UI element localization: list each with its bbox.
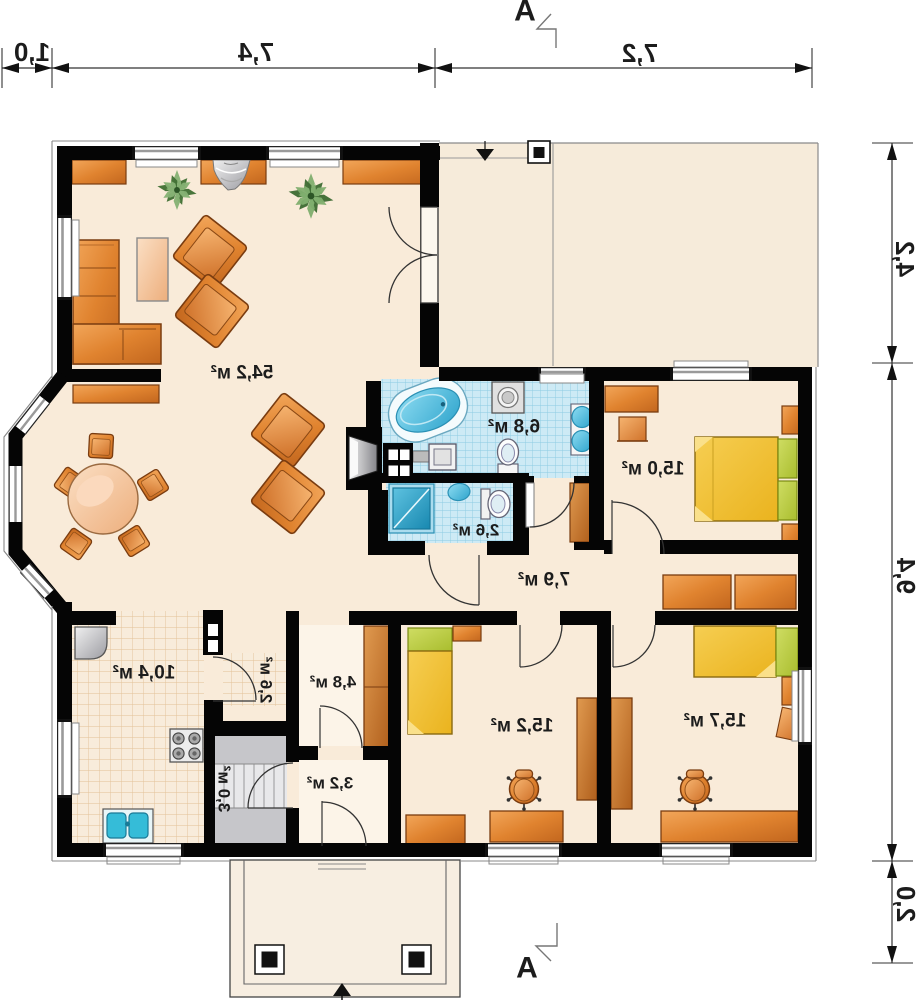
svg-text:7,9 м²: 7,9 м² <box>518 570 570 591</box>
svg-text:4,2: 4,2 <box>890 241 916 277</box>
svg-text:54,2 м²: 54,2 м² <box>211 363 274 384</box>
svg-text:15,2 м²: 15,2 м² <box>491 716 554 737</box>
svg-text:2,6 м²: 2,6 м² <box>257 656 276 703</box>
svg-text:7,2: 7,2 <box>622 38 658 68</box>
svg-text:4,8 м²: 4,8 м² <box>309 673 356 692</box>
svg-text:3,0 м²: 3,0 м² <box>215 765 234 812</box>
svg-text:2,6 м²: 2,6 м² <box>452 521 499 540</box>
svg-text:2,0: 2,0 <box>891 886 916 922</box>
svg-text:9,4: 9,4 <box>891 557 916 594</box>
svg-text:15,0 м²: 15,0 м² <box>622 459 685 480</box>
svg-text:A: A <box>514 0 536 28</box>
svg-text:15,7 м²: 15,7 м² <box>684 711 747 732</box>
svg-text:7,4: 7,4 <box>237 37 274 67</box>
svg-text:A: A <box>516 952 538 985</box>
svg-text:10,4 м²: 10,4 м² <box>113 663 176 684</box>
svg-text:6,8 м²: 6,8 м² <box>488 417 540 438</box>
svg-text:1,0: 1,0 <box>14 37 50 67</box>
svg-text:3,2 м²: 3,2 м² <box>306 774 353 793</box>
